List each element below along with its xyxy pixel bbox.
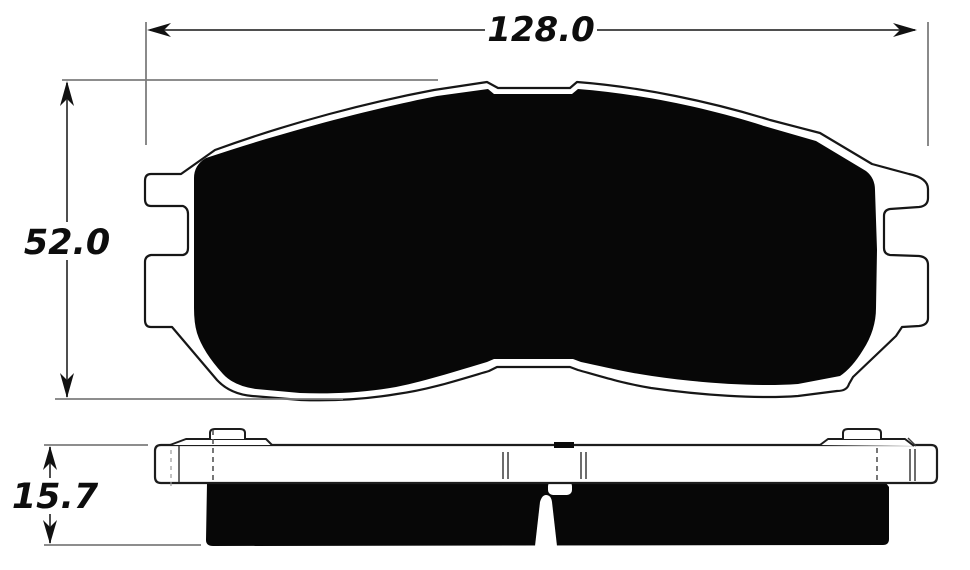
wear-clip-right: [820, 429, 916, 446]
width-dimension-label: 128.0: [487, 10, 595, 50]
brake-pad-technical-drawing: 128.0 52.0 15.7: [0, 0, 970, 570]
side-view: [155, 429, 937, 546]
drawing-canvas: 128.0 52.0 15.7: [0, 0, 970, 570]
thickness-dimension-label: 15.7: [12, 477, 99, 517]
height-dimension-label: 52.0: [24, 223, 110, 263]
backing-plate: [155, 445, 937, 483]
front-view: [145, 82, 928, 400]
wear-clip-left: [170, 429, 272, 445]
friction-material-face: [194, 89, 877, 393]
plate-top-tab-mark: [554, 442, 574, 448]
